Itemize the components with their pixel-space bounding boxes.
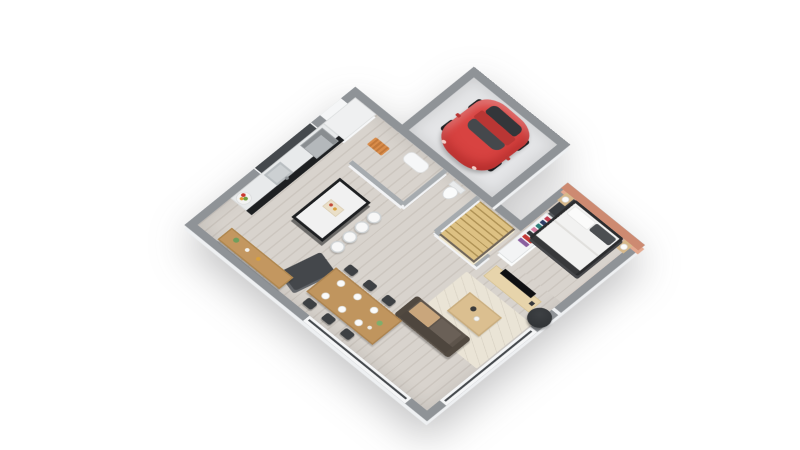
floor-plan-scene [0,0,800,450]
floor-plan-stage [0,0,800,450]
lamp [618,242,629,251]
floor-plan [162,20,669,431]
